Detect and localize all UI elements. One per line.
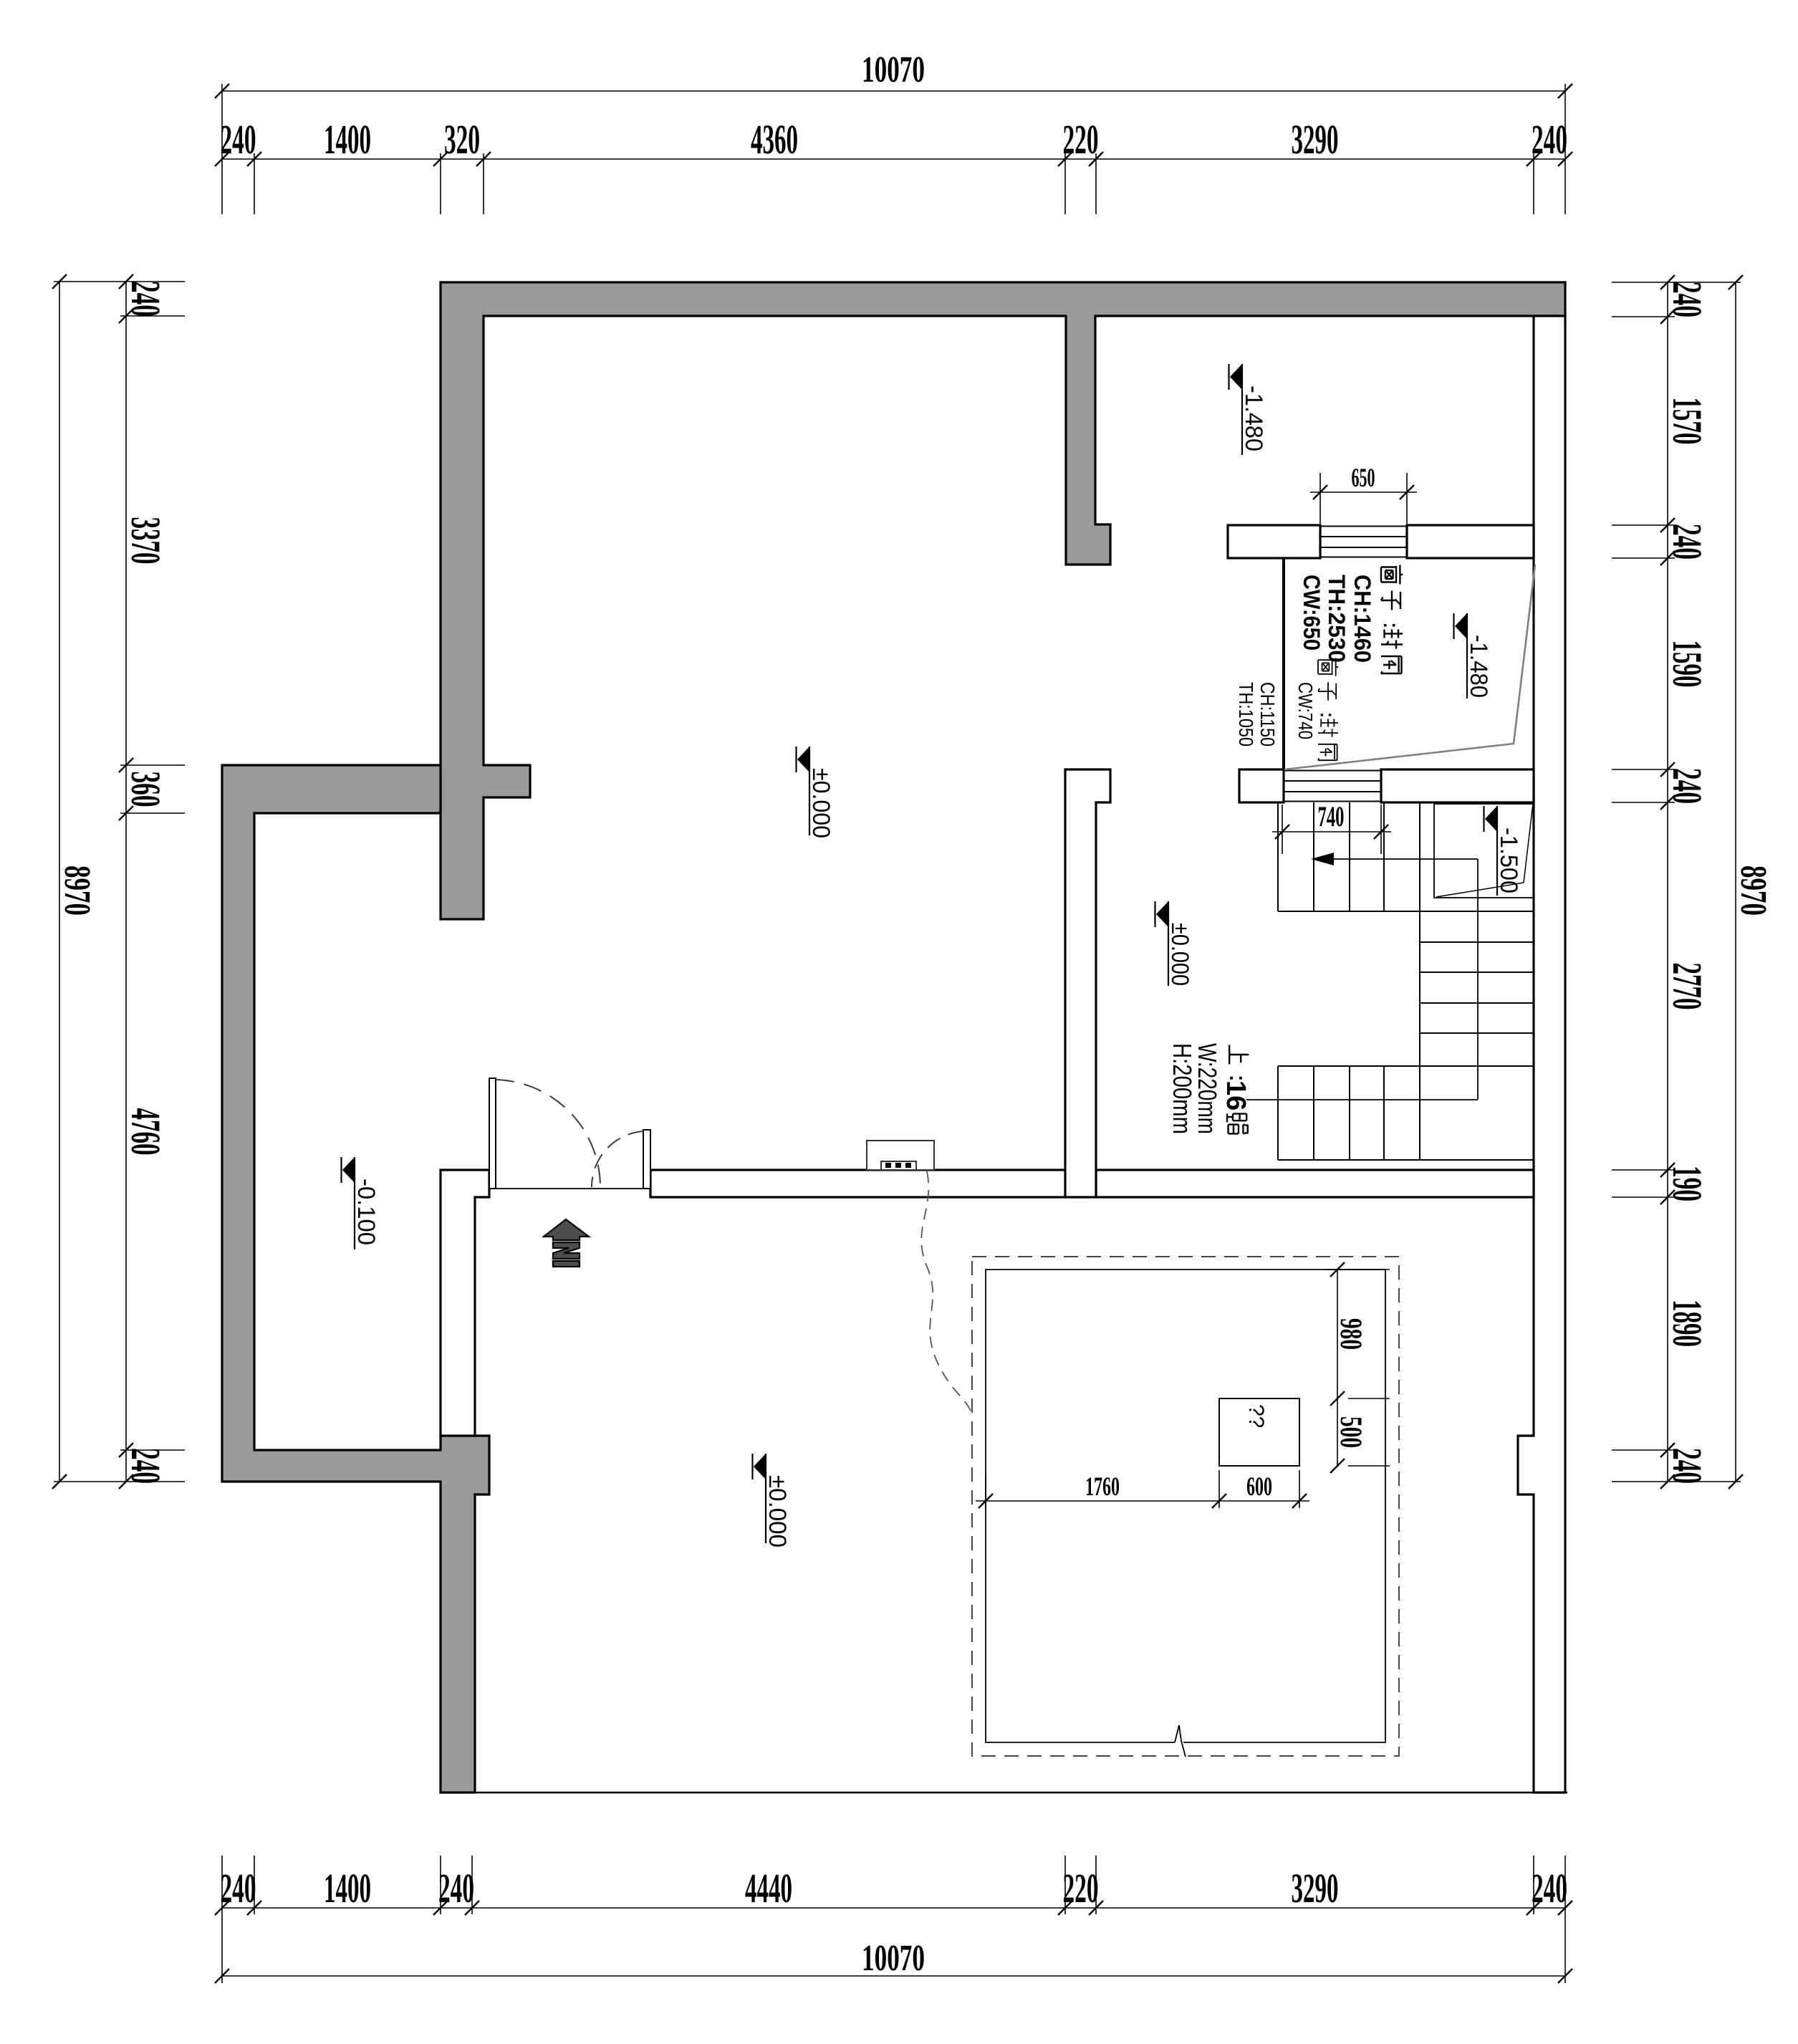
svg-text:1570: 1570 xyxy=(1664,398,1711,445)
svg-text:190: 190 xyxy=(1664,1166,1711,1201)
svg-text:220: 220 xyxy=(1063,1865,1099,1911)
svg-text:3290: 3290 xyxy=(1292,116,1339,163)
svg-text:CH:1460: CH:1460 xyxy=(1350,575,1375,663)
svg-text:240: 240 xyxy=(1532,116,1567,163)
svg-text:650: 650 xyxy=(1352,464,1375,493)
svg-text:1590: 1590 xyxy=(1664,640,1711,688)
svg-text:240: 240 xyxy=(1664,524,1711,560)
svg-text:3370: 3370 xyxy=(122,517,169,565)
svg-text:1400: 1400 xyxy=(324,1865,371,1911)
svg-text:±0.000: ±0.000 xyxy=(807,768,835,838)
svg-text:240: 240 xyxy=(221,1865,256,1911)
svg-text:CW:650: CW:650 xyxy=(1299,575,1325,651)
svg-text:16: 16 xyxy=(1221,1080,1251,1110)
svg-text:320: 320 xyxy=(444,116,480,163)
svg-text:-1.480: -1.480 xyxy=(1240,385,1267,451)
svg-text:±0.000: ±0.000 xyxy=(1166,923,1193,986)
svg-text:980: 980 xyxy=(1334,1318,1367,1350)
svg-text:500: 500 xyxy=(1334,1416,1367,1448)
svg-text:360: 360 xyxy=(122,772,169,807)
svg-text:TH:1050: TH:1050 xyxy=(1235,682,1257,747)
svg-text:10070: 10070 xyxy=(862,49,925,90)
svg-text:4360: 4360 xyxy=(751,116,798,163)
svg-text:??: ?? xyxy=(1244,1404,1268,1428)
svg-text:220: 220 xyxy=(1063,116,1099,163)
svg-text:-0.100: -0.100 xyxy=(352,1179,380,1245)
svg-text:4440: 4440 xyxy=(745,1865,792,1911)
svg-text:10070: 10070 xyxy=(862,1938,925,1979)
svg-text:3290: 3290 xyxy=(1292,1865,1339,1911)
svg-text:240: 240 xyxy=(122,281,169,317)
svg-text:240: 240 xyxy=(122,1448,169,1484)
svg-text:8970: 8970 xyxy=(1733,865,1774,916)
svg-text:240: 240 xyxy=(1664,1448,1711,1484)
svg-text:CW:740: CW:740 xyxy=(1294,682,1317,739)
svg-text:CH:1150: CH:1150 xyxy=(1256,682,1279,747)
svg-text:1760: 1760 xyxy=(1085,1472,1120,1502)
svg-text:240: 240 xyxy=(1664,768,1711,804)
svg-text:TH:2530: TH:2530 xyxy=(1324,575,1350,663)
svg-text:240: 240 xyxy=(221,116,256,163)
svg-text:H:200mm: H:200mm xyxy=(1168,1043,1197,1134)
svg-text:±0.000: ±0.000 xyxy=(764,1475,791,1548)
svg-text:4760: 4760 xyxy=(122,1108,169,1156)
svg-text:-1.480: -1.480 xyxy=(1465,635,1492,698)
svg-text:1400: 1400 xyxy=(324,116,371,163)
svg-text:240: 240 xyxy=(1664,282,1711,317)
svg-text:600: 600 xyxy=(1246,1472,1272,1502)
svg-text:240: 240 xyxy=(1532,1865,1567,1911)
svg-text:1890: 1890 xyxy=(1664,1300,1711,1347)
svg-text:740: 740 xyxy=(1318,800,1345,833)
svg-text:2770: 2770 xyxy=(1664,963,1711,1010)
svg-text:240: 240 xyxy=(438,1865,474,1911)
svg-text:8970: 8970 xyxy=(57,865,97,916)
